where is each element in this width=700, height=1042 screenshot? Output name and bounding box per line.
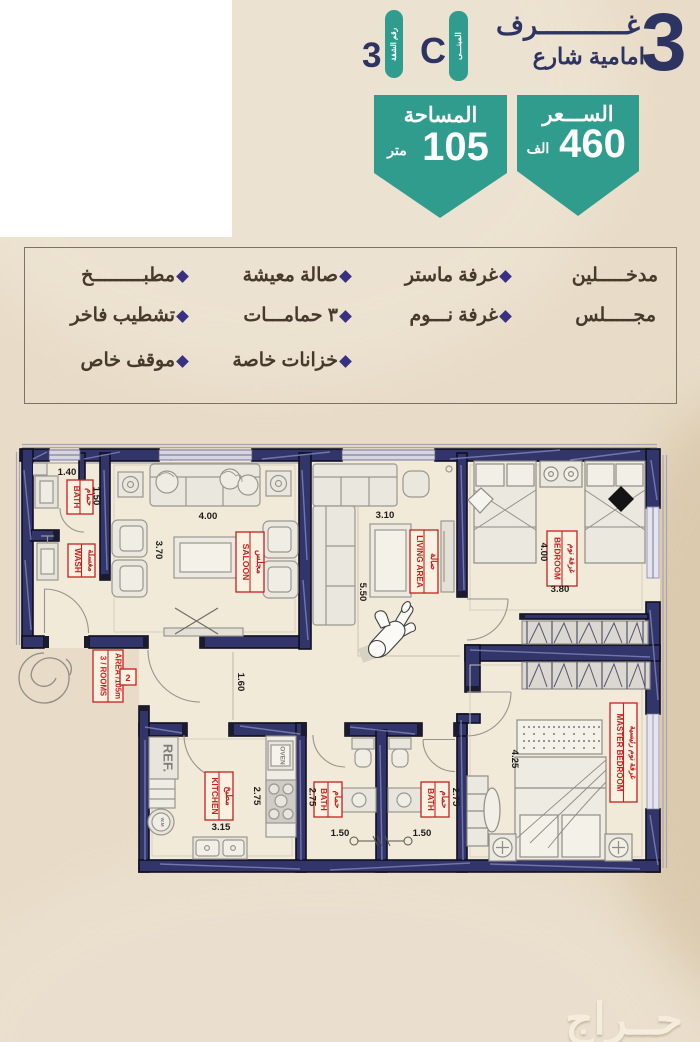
svg-text:2.75: 2.75 [450, 788, 461, 807]
svg-text:1.50: 1.50 [91, 487, 102, 506]
svg-text:1.50: 1.50 [331, 828, 350, 839]
svg-text:SALOON: SALOON [241, 544, 251, 581]
svg-text:3.80: 3.80 [551, 584, 570, 595]
svg-text:حمام: حمام [332, 791, 343, 809]
svg-text:LIVING AREA: LIVING AREA [415, 535, 424, 588]
svg-text:3 / ROOMS: 3 / ROOMS [99, 656, 108, 696]
svg-text:BATH: BATH [319, 788, 329, 811]
svg-text:4.00: 4.00 [199, 511, 218, 522]
svg-text:3.10: 3.10 [376, 510, 395, 521]
svg-text:2.75: 2.75 [307, 788, 318, 807]
svg-text:4.00: 4.00 [538, 543, 549, 562]
svg-text:مجلس: مجلس [254, 550, 265, 574]
svg-text:مغسلة: مغسلة [87, 549, 96, 571]
svg-text:REF.: REF. [161, 744, 176, 772]
svg-text:4.25: 4.25 [509, 750, 520, 769]
svg-text:مطبخ: مطبخ [223, 786, 234, 805]
svg-text:غرفة نوم: غرفة نوم [567, 544, 577, 574]
svg-text:2: 2 [125, 673, 130, 683]
svg-text:1.60: 1.60 [235, 673, 246, 692]
svg-text:KITCHEN: KITCHEN [210, 777, 220, 814]
svg-text:BATH: BATH [72, 486, 82, 509]
svg-text:BATH: BATH [426, 788, 436, 811]
svg-text:MASTER BEDROOM: MASTER BEDROOM [615, 714, 624, 792]
svg-text:W.M: W.M [160, 818, 165, 827]
svg-text:غرفة نوم رئيسية: غرفة نوم رئيسية [628, 726, 638, 780]
svg-text:1.50: 1.50 [413, 828, 432, 839]
svg-text:3.15: 3.15 [212, 822, 231, 833]
svg-text:OVEN: OVEN [279, 746, 286, 765]
svg-text:5.50: 5.50 [357, 583, 368, 602]
svg-text:حمام: حمام [439, 791, 450, 809]
svg-text:1.40: 1.40 [58, 467, 77, 478]
svg-text:2.75: 2.75 [251, 787, 262, 806]
svg-text:3.70: 3.70 [153, 541, 164, 560]
svg-text:WASH: WASH [73, 548, 82, 573]
svg-text:BEDROOM: BEDROOM [553, 537, 562, 580]
svg-text:صالة: صالة [429, 553, 439, 570]
